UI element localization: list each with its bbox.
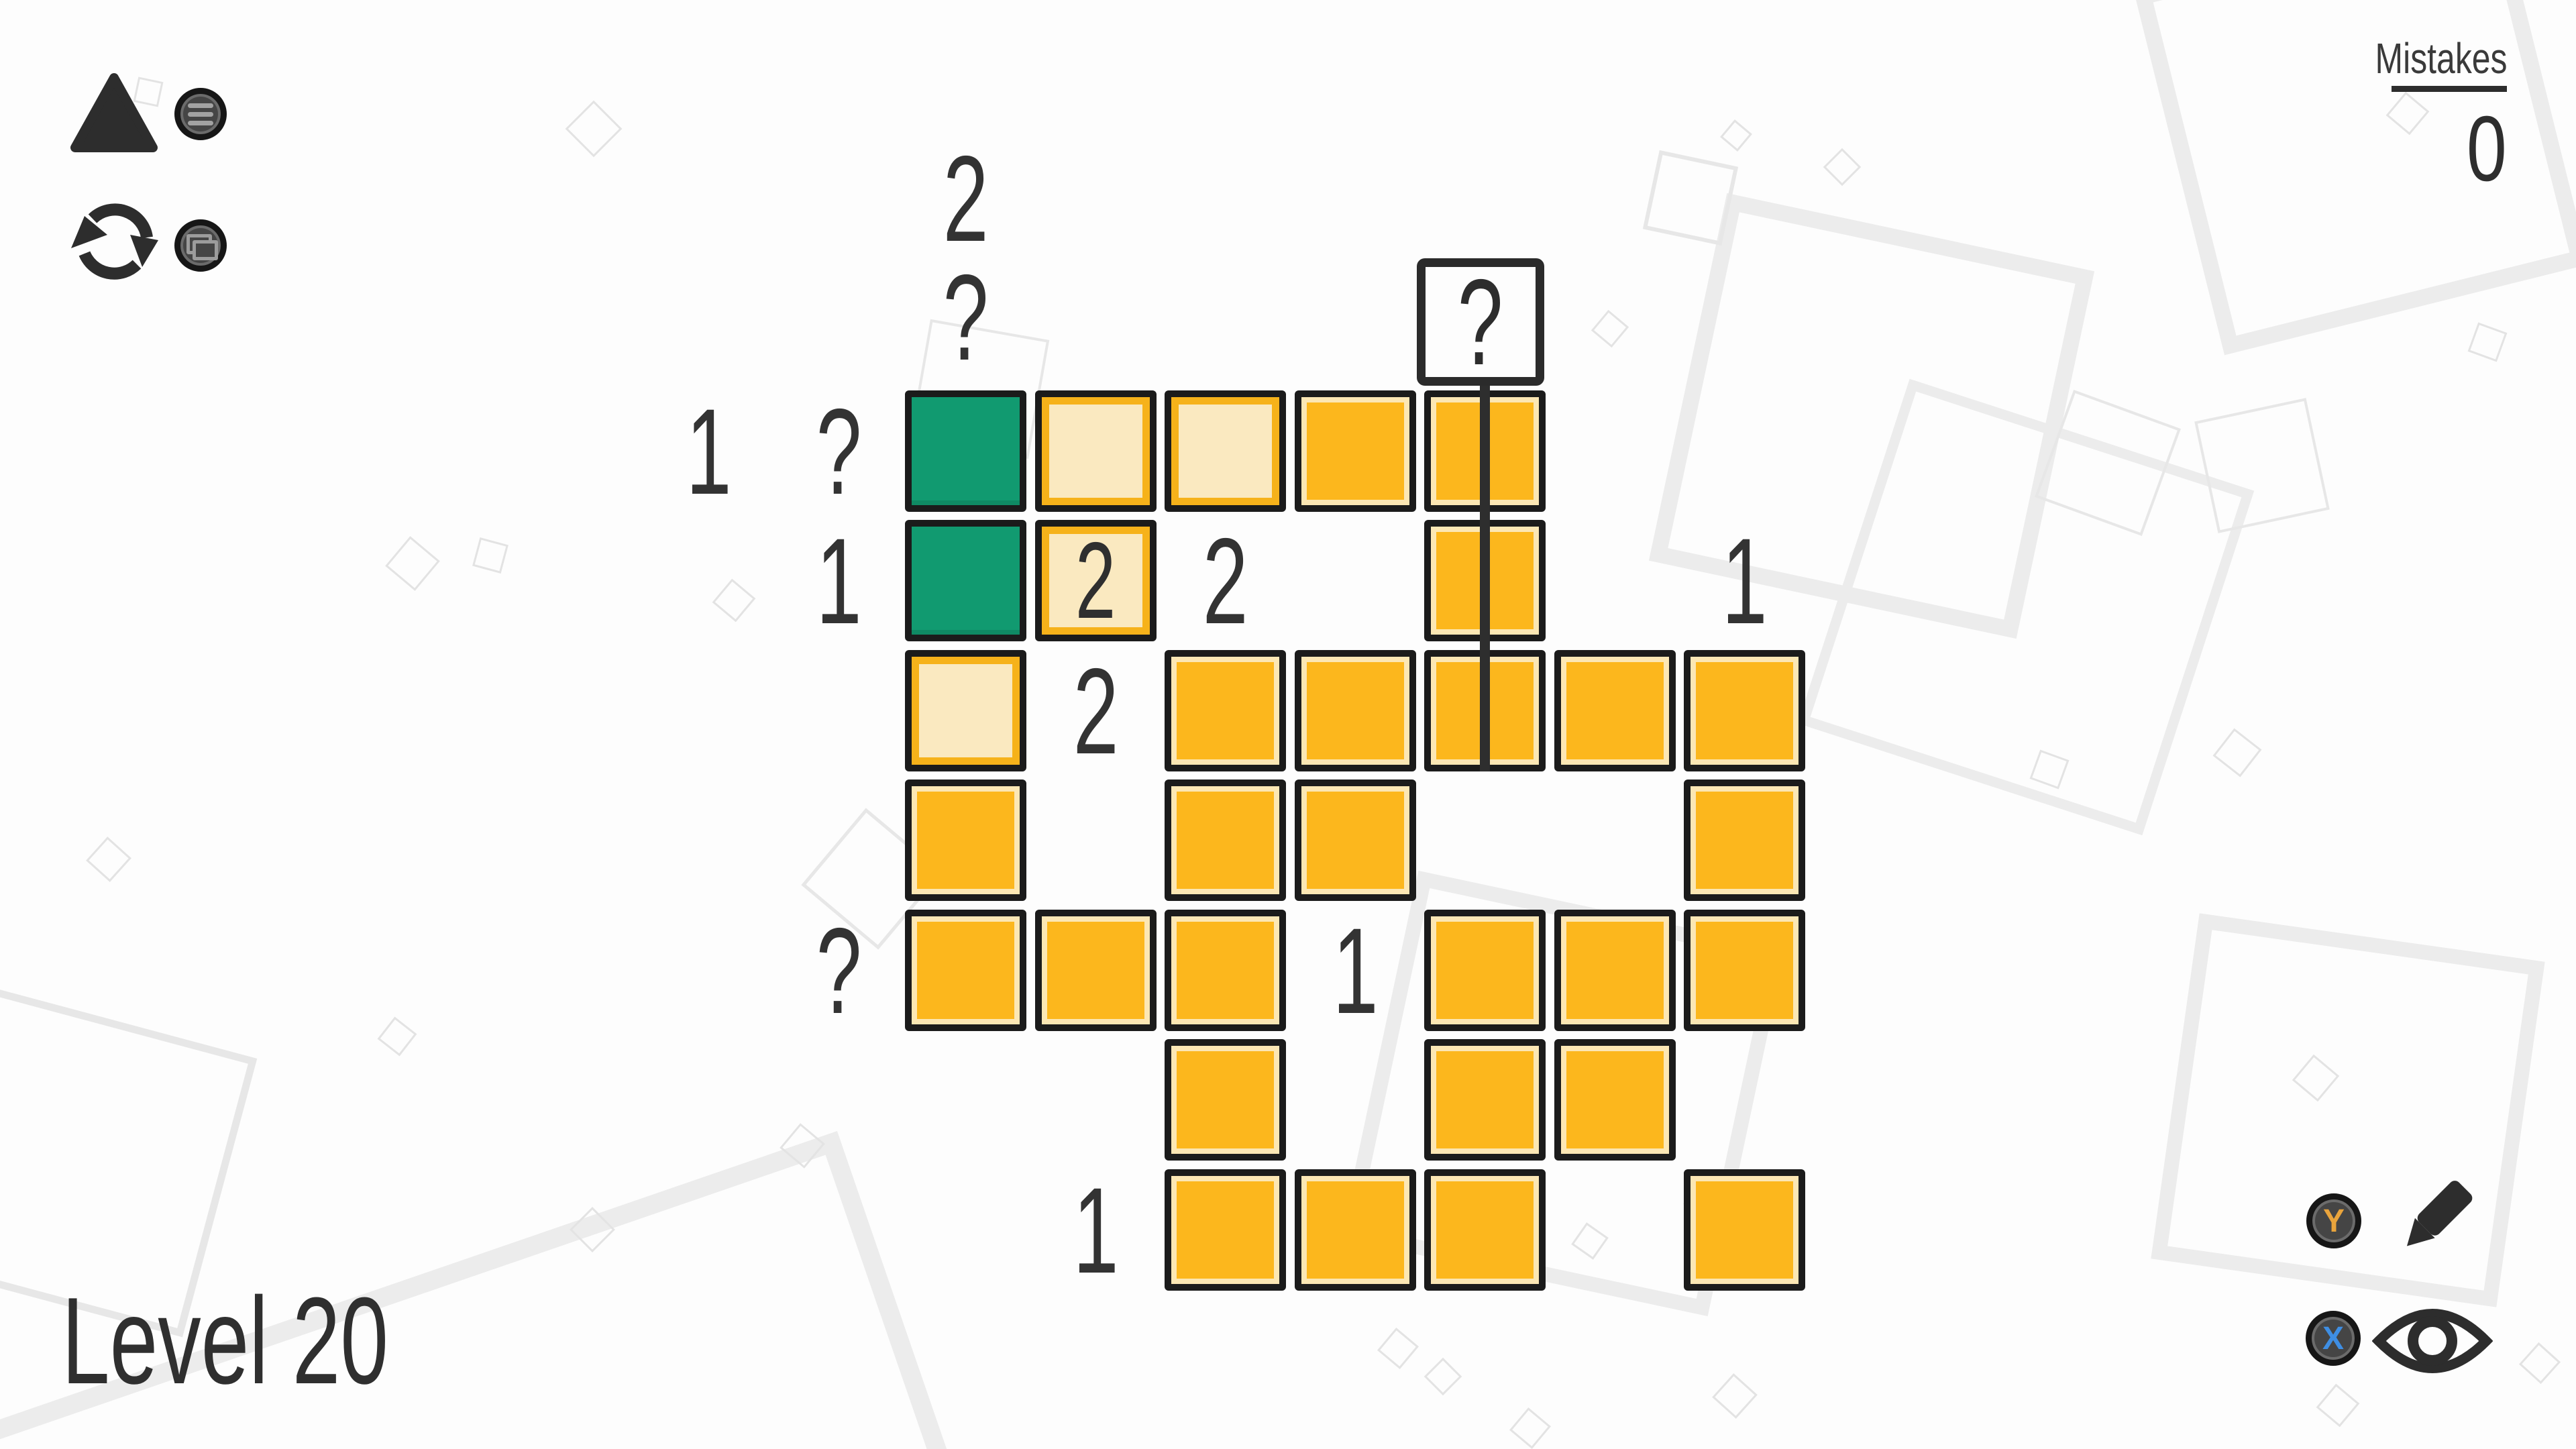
cell-r4c3[interactable] (1165, 780, 1286, 901)
cell-r1c4[interactable] (1295, 390, 1416, 512)
bg-diamond (385, 536, 440, 591)
restart-icon[interactable] (66, 195, 164, 292)
y-button-label: Y (2323, 1203, 2345, 1240)
col-clue-1-2[interactable]: ? (905, 256, 1026, 378)
cell-r2c7[interactable]: 1 (1684, 520, 1805, 641)
bg-square (2151, 913, 2544, 1307)
bg-diamond (1377, 1328, 1419, 1369)
cell-r5c1[interactable] (905, 910, 1026, 1031)
bg-diamond (1823, 148, 1862, 186)
cell-r5c4[interactable]: 1 (1295, 910, 1416, 1031)
bg-diamond (1720, 119, 1752, 152)
bg-diamond (566, 101, 623, 158)
cursor-box: ? (1417, 258, 1544, 386)
level-label: Level 20 (62, 1269, 388, 1411)
cell-r2c3[interactable]: 2 (1165, 520, 1286, 641)
bg-square (1643, 150, 1738, 246)
bg-diamond (1424, 1358, 1462, 1396)
copy-icon (186, 234, 215, 257)
cell-r7c3[interactable] (1165, 1169, 1286, 1291)
row-clue-1-1[interactable]: 1 (649, 390, 770, 512)
mistakes-underline (2392, 86, 2507, 92)
game-screen: Mistakes 0 Level 20 221211?11??2? Y X (0, 0, 2576, 1449)
eye-icon[interactable] (2372, 1300, 2493, 1382)
cell-r5c3[interactable] (1165, 910, 1286, 1031)
cell-r2c2-number: 2 (1035, 520, 1157, 641)
cell-r3c4[interactable] (1295, 650, 1416, 771)
cell-r2c1[interactable] (905, 520, 1026, 641)
menu-button[interactable] (174, 88, 227, 140)
mistakes-counter: Mistakes 0 (2338, 34, 2508, 203)
cell-r7c5[interactable] (1424, 1169, 1546, 1291)
cell-r3c3[interactable] (1165, 650, 1286, 771)
cell-r4c4[interactable] (1295, 780, 1416, 901)
menu-icon (188, 103, 213, 125)
cell-r3c2[interactable]: 2 (1035, 650, 1157, 771)
pencil-icon[interactable] (2383, 1173, 2479, 1269)
cell-r1c3[interactable] (1165, 390, 1286, 512)
cell-r6c3[interactable] (1165, 1039, 1286, 1161)
cursor-line (1480, 384, 1490, 771)
mistakes-value: 0 (2467, 96, 2507, 203)
copy-button[interactable] (174, 219, 227, 272)
bg-diamond (2316, 1384, 2360, 1428)
col-clue-1-1[interactable]: 2 (905, 138, 1026, 259)
bg-diamond (2468, 323, 2508, 362)
bg-square (2194, 398, 2330, 533)
bg-diamond (2213, 729, 2262, 777)
row-clue-2-1[interactable]: 1 (779, 520, 900, 641)
row-clue-5-1[interactable]: ? (779, 910, 900, 1031)
x-button[interactable]: X (2306, 1311, 2361, 1366)
bg-diamond (1712, 1373, 1758, 1419)
cell-r7c4[interactable] (1295, 1169, 1416, 1291)
cell-r4c7[interactable] (1684, 780, 1805, 901)
cell-r6c5[interactable] (1424, 1039, 1546, 1161)
bg-diamond (86, 837, 131, 882)
bg-diamond (472, 537, 508, 574)
bg-diamond (1509, 1407, 1551, 1449)
cell-r5c2[interactable] (1035, 910, 1157, 1031)
cell-r3c7[interactable] (1684, 650, 1805, 771)
cell-r1c1[interactable] (905, 390, 1026, 512)
cell-r6c6[interactable] (1554, 1039, 1676, 1161)
bg-diamond (2519, 1342, 2561, 1384)
cell-r7c2[interactable]: 1 (1035, 1169, 1157, 1291)
cell-r4c1[interactable] (905, 780, 1026, 901)
cell-r5c6[interactable] (1554, 910, 1676, 1031)
mistakes-label: Mistakes (2375, 34, 2507, 83)
triangle-icon[interactable] (67, 71, 161, 154)
row-clue-1-2[interactable]: ? (779, 390, 900, 512)
cell-r3c6[interactable] (1554, 650, 1676, 771)
bg-diamond (1591, 310, 1629, 347)
cell-r3c1[interactable] (905, 650, 1026, 771)
x-button-label: X (2322, 1320, 2344, 1357)
bg-diamond (378, 1017, 417, 1057)
y-button[interactable]: Y (2306, 1193, 2361, 1248)
bg-diamond (712, 579, 756, 623)
cell-r7c7[interactable] (1684, 1169, 1805, 1291)
cell-r5c7[interactable] (1684, 910, 1805, 1031)
cell-r1c2[interactable] (1035, 390, 1157, 512)
cell-r5c5[interactable] (1424, 910, 1546, 1031)
